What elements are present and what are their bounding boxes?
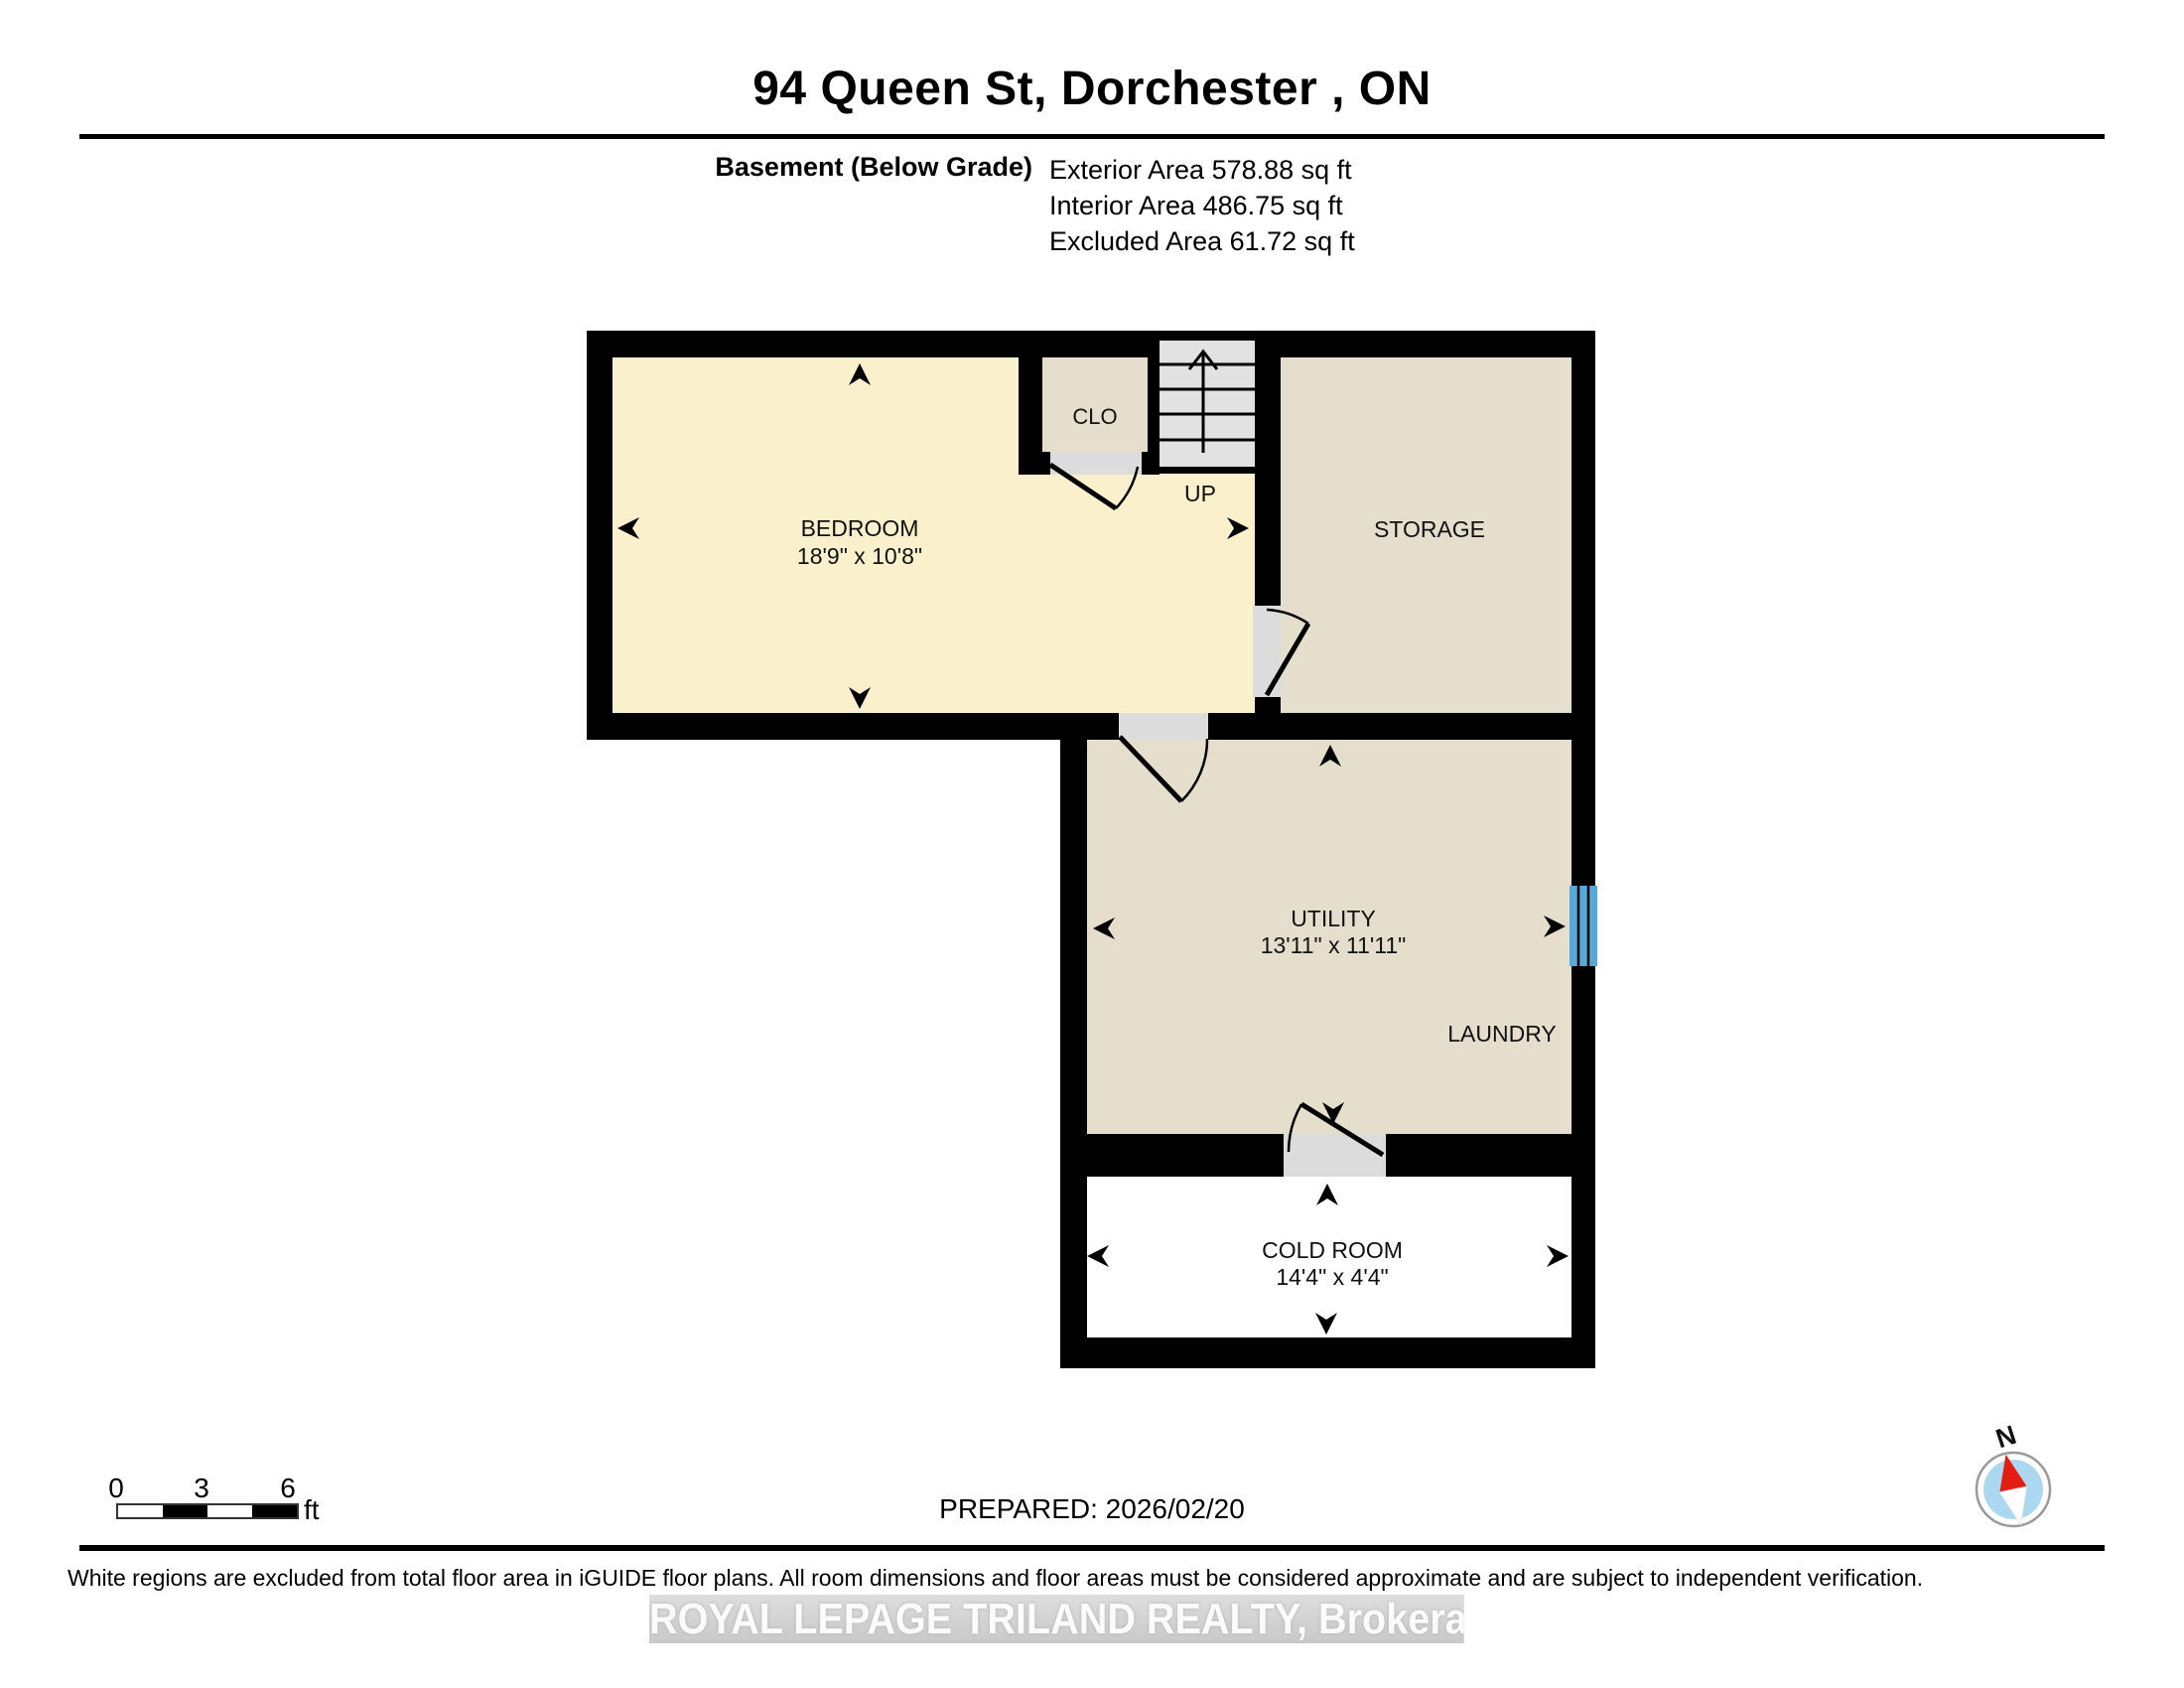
window-symbol (1570, 886, 1597, 966)
stairs-up-label: UP (1184, 481, 1216, 506)
closet-label: CLO (1072, 404, 1117, 429)
bedroom-label: BEDROOM (801, 515, 919, 541)
wall-left (587, 331, 613, 740)
bedroom-dims: 18'9" x 10'8" (797, 543, 922, 569)
cold-room-label: COLD ROOM (1262, 1237, 1403, 1263)
prepared-date: PREPARED: 2026/02/20 (0, 1493, 2184, 1525)
laundry-label: LAUNDRY (1447, 1021, 1557, 1047)
wall-right (1571, 331, 1595, 1368)
footer-divider (79, 1545, 2105, 1551)
floor-plan-drawing: CLO UP BEDROOM 18'9" x 10'8" STORAGE UTI… (0, 0, 2184, 1688)
cold-room-dims: 14'4" x 4'4" (1276, 1264, 1388, 1290)
wall-closet-stairs-divider (1148, 357, 1160, 475)
stairs (1160, 341, 1255, 474)
stairs-bottom-edge (1160, 467, 1255, 474)
utility-dims: 13'11" x 11'11" (1261, 932, 1407, 958)
wall-cold-room-bottom (1060, 1337, 1595, 1368)
floor-plan-page: 94 Queen St, Dorchester , ON Basement (B… (0, 0, 2184, 1688)
utility-label: UTILITY (1291, 906, 1376, 931)
brokerage-watermark: ROYAL LEPAGE TRILAND REALTY, Brokerage (649, 1595, 1464, 1643)
storage-door-opening (1253, 606, 1281, 697)
wall-top (587, 331, 1595, 357)
cold-room-door-opening (1284, 1134, 1386, 1177)
window-icon (1570, 886, 1597, 966)
disclaimer-text: White regions are excluded from total fl… (68, 1565, 2113, 1592)
compass-north-label: N (1992, 1420, 2020, 1455)
wall-mid-horizontal (587, 713, 1595, 740)
stairs-area (1160, 341, 1255, 474)
storage-label: STORAGE (1374, 516, 1485, 542)
utility-door-opening (1119, 713, 1208, 740)
closet-floor (1032, 348, 1157, 457)
wall-lower-left (1060, 713, 1087, 1368)
